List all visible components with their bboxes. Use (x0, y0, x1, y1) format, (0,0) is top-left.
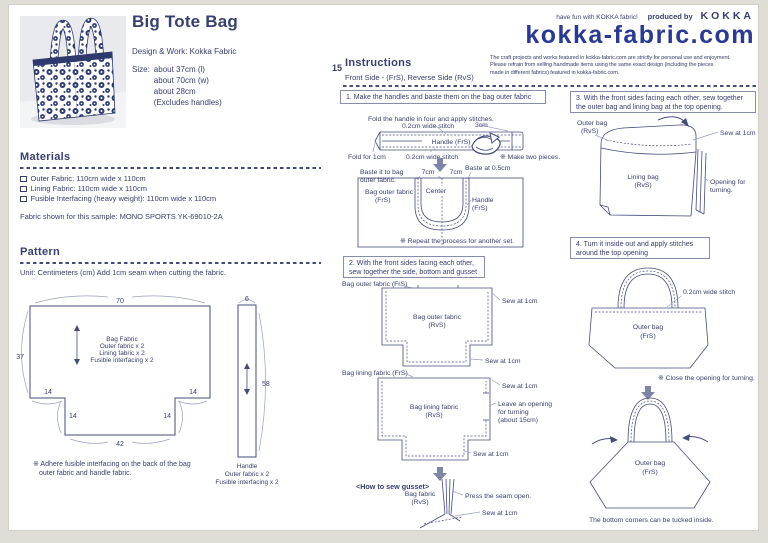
site-logo: kokka-fabric.com (525, 21, 755, 50)
size-label: Size: (132, 64, 150, 108)
sample-fabric-note: Fabric shown for this sample: MONO SPORT… (20, 212, 223, 221)
step4-diagram: 0.2cm wide stitch Outer bag (FrS) ※ Clos… (565, 259, 765, 531)
side-legend: Front Side - (FrS), Reverse Side (RvS) (345, 73, 474, 82)
interfacing-note: outer fabric and handle fabric. (39, 470, 132, 477)
close-opening-note: ※ Close the opening for turning. (658, 375, 755, 382)
bag-photo (20, 16, 126, 128)
step1-title-box: 1. Make the handles and baste them on th… (340, 90, 546, 104)
lining-bag-label: Lining bag (627, 174, 659, 181)
step3-title-box: 3. With the front sides facing each othe… (570, 91, 756, 113)
materials-heading: Materials (20, 151, 70, 163)
handle-piece-label: Fusible interfacing x 2 (215, 479, 279, 486)
grain-arrow-icon (244, 363, 250, 395)
outer-bag-label: Outer bag (577, 120, 607, 127)
handle-label: (FrS) (472, 205, 487, 212)
gusset-heading: <How to sew gusset> (356, 482, 429, 491)
disclaimer-line: The craft projects and works featured in… (490, 55, 762, 62)
baste-label: Baste it to bag (360, 169, 404, 176)
handle-dim-right: 58 (262, 381, 270, 388)
disclaimer-line: made in different fabrics) featured in k… (490, 70, 762, 77)
outer-top-label: Bag outer fabric (FrS) (342, 281, 407, 288)
sew-1cm-label: Sew at 1cm (482, 510, 518, 517)
stitch-bottom-label: 0.2cm wide stitch (406, 154, 458, 161)
sew-1cm-label: Sew at 1cm (473, 451, 509, 458)
dim-left: 37 (16, 354, 24, 361)
dim-notch-right-v: 14 (163, 413, 171, 420)
opening-label: for turning (498, 409, 529, 416)
center-label: Center (426, 188, 447, 195)
step3-title: 3. With the front sides facing each othe… (576, 94, 752, 103)
opening-turning-label: turning. (710, 187, 733, 194)
sew-1cm-label: Sew at 1cm (502, 298, 538, 305)
three-cm-label: 3cm (475, 122, 488, 129)
step4-title: 4. Turn it inside out and apply stitches (576, 240, 706, 249)
dim-notch-right-h: 14 (189, 389, 197, 396)
bag-piece-outline (30, 306, 210, 435)
pattern-heading: Pattern (20, 246, 60, 258)
final-outer-label: Outer bag (635, 460, 665, 467)
step2-title: sew together the side, bottom and gusset (349, 268, 481, 277)
step2-title: 2. With the front sides facing each othe… (349, 259, 481, 268)
outer-bag-frs-label: Outer bag (633, 324, 663, 331)
gusset-fabric-label: (RvS) (411, 499, 428, 506)
outer-bag-frs-label: (FrS) (640, 333, 655, 340)
size-block: Size: about 37cm (l) about 70cm (w) abou… (132, 64, 222, 108)
bag-piece-label: Fusible interfacing x 2 (90, 357, 154, 364)
pattern-divider (20, 262, 321, 264)
handle-piece-label: Outer fabric x 2 (225, 471, 270, 478)
grain-arrow-icon (74, 325, 80, 365)
tucked-tote (590, 398, 710, 508)
lining-bag-label: (RvS) (634, 182, 651, 189)
page-title: Big Tote Bag (132, 12, 238, 32)
dim-top: 70 (116, 298, 124, 305)
sew-1cm-label: Sew at 1cm (502, 383, 538, 390)
bag-piece-dimension-curves (22, 296, 208, 444)
sew-1cm-label: Sew at 1cm (485, 358, 521, 365)
checkbox-icon (20, 196, 27, 203)
bag-piece-label: Outer fabric x 2 (100, 343, 145, 350)
outer-center-label: Bag outer fabric (413, 314, 462, 321)
bag-outer-label: (FrS) (375, 197, 390, 204)
disclaimer: The craft projects and works featured in… (490, 55, 762, 77)
tuck-arrows (592, 434, 708, 444)
lining-fabric-shape (378, 378, 490, 460)
material-item-label: Outer Fabric: 110cm wide x 110cm (31, 174, 146, 184)
outer-bag-label: (RvS) (581, 128, 598, 135)
bag-outer-label: Bag outer fabric (365, 189, 414, 196)
dim-bottom: 42 (116, 441, 124, 448)
size-line: about 28cm (154, 86, 222, 97)
fold-1cm-label: Fold for 1cm (348, 154, 386, 161)
step1-diagram: Fold the handle in four and apply stitch… (340, 106, 565, 254)
step4-title: around the top opening (576, 249, 706, 258)
handle-dimension-curves (239, 300, 266, 452)
baste-at-label: Baste at 0.5cm (465, 165, 511, 172)
materials-list: Outer Fabric: 110cm wide x 110cm Lining … (20, 174, 216, 204)
disclaimer-line: Please refrain from selling handmade ite… (490, 62, 762, 69)
bag-3d-outline (600, 125, 706, 216)
size-line: about 70cm (w) (154, 75, 222, 86)
photo-bag-body (33, 52, 115, 121)
material-item: Outer Fabric: 110cm wide x 110cm (20, 174, 216, 184)
checkbox-icon (20, 176, 27, 183)
step2-diagram: Bag outer fabric (FrS) Bag outer fabric … (338, 279, 559, 540)
material-item-label: Fusible Interfacing (heavy weight): 110c… (31, 194, 217, 204)
handle-piece-label: Handle (237, 463, 258, 470)
handle-label: Handle (472, 197, 494, 204)
opening-label: Leave an opening (498, 401, 552, 408)
rolled-handle-icon (472, 133, 500, 154)
stitch-top-label: 0.2cm wide stitch (402, 123, 454, 130)
instructions-heading: Instructions (345, 57, 412, 69)
seven-cm-right: 7cm (450, 169, 463, 176)
unit-note: Unit: Centimeters (cm) Add 1cm seam when… (20, 268, 226, 277)
handle-dim-top: 6 (245, 296, 249, 303)
down-arrow-icon (433, 467, 447, 481)
press-seam-label: Press the seam open. (465, 493, 531, 500)
tuck-note: The bottom corners can be tucked inside. (589, 517, 714, 524)
interfacing-note: ※ Adhere fusible interfacing on the back… (33, 461, 191, 468)
pattern-diagram: 70 37 14 14 14 14 42 Bag Fabric Outer fa… (10, 283, 320, 501)
handle-frs-label: Handle (FrS) (432, 139, 471, 146)
final-outer-label: (FrS) (642, 469, 657, 476)
topstitch-label: 0.2cm wide stitch (683, 289, 735, 296)
step3-diagram: Outer bag (RvS) Sew at 1cm Lining bag (R… (565, 113, 765, 235)
design-credit: Design & Work: Kokka Fabric (132, 47, 236, 56)
size-lines: about 37cm (l) about 70cm (w) about 28cm… (154, 64, 222, 108)
opening-label: (about 15cm) (498, 417, 538, 424)
dim-notch-left-h: 14 (44, 389, 52, 396)
lining-top-label: Bag lining fabric (FrS) (342, 370, 408, 377)
page-number: 15 (332, 63, 342, 73)
step2-title-box: 2. With the front sides facing each othe… (343, 256, 485, 278)
repeat-note: ※ Repeat the process for another set. (400, 238, 514, 245)
size-line: about 37cm (l) (154, 64, 222, 75)
step1-title: 1. Make the handles and baste them on th… (346, 93, 542, 102)
size-line: (Excludes handles) (154, 97, 222, 108)
brand-tagline: have fun with KOKKA fabric! (556, 14, 638, 21)
sew-1cm-label: Sew at 1cm (720, 130, 756, 137)
bag-piece-label: Lining fabric x 2 (99, 350, 145, 357)
outer-center-label: (RvS) (428, 322, 445, 329)
checkbox-icon (20, 186, 27, 193)
produced-by-label: produced by (648, 12, 693, 21)
material-item: Lining Fabric: 110cm wide x 110cm (20, 184, 216, 194)
opening-turning-label: Opening for (710, 179, 746, 186)
make-two-note: ※ Make two pieces. (500, 154, 560, 161)
step3-title: the outer bag and lining bag at the top … (576, 103, 752, 112)
gusset-fabric-label: Bag fabric (405, 491, 436, 498)
lining-center-label: (RvS) (425, 412, 442, 419)
dim-notch-left-v: 14 (69, 413, 77, 420)
materials-divider (20, 167, 321, 169)
step4-title-box: 4. Turn it inside out and apply stitches… (570, 237, 710, 259)
material-item-label: Lining Fabric: 110cm wide x 110cm (31, 184, 147, 194)
instructions-divider (343, 85, 757, 87)
lining-center-label: Bag lining fabric (410, 404, 459, 411)
seven-cm-left: 7cm (422, 169, 435, 176)
material-item: Fusible Interfacing (heavy weight): 110c… (20, 194, 216, 204)
bag-piece-label: Bag Fabric (106, 336, 138, 343)
sheet-frame: Big Tote Bag Design & Work: Kokka Fabric… (0, 0, 768, 543)
finished-tote (589, 268, 708, 368)
